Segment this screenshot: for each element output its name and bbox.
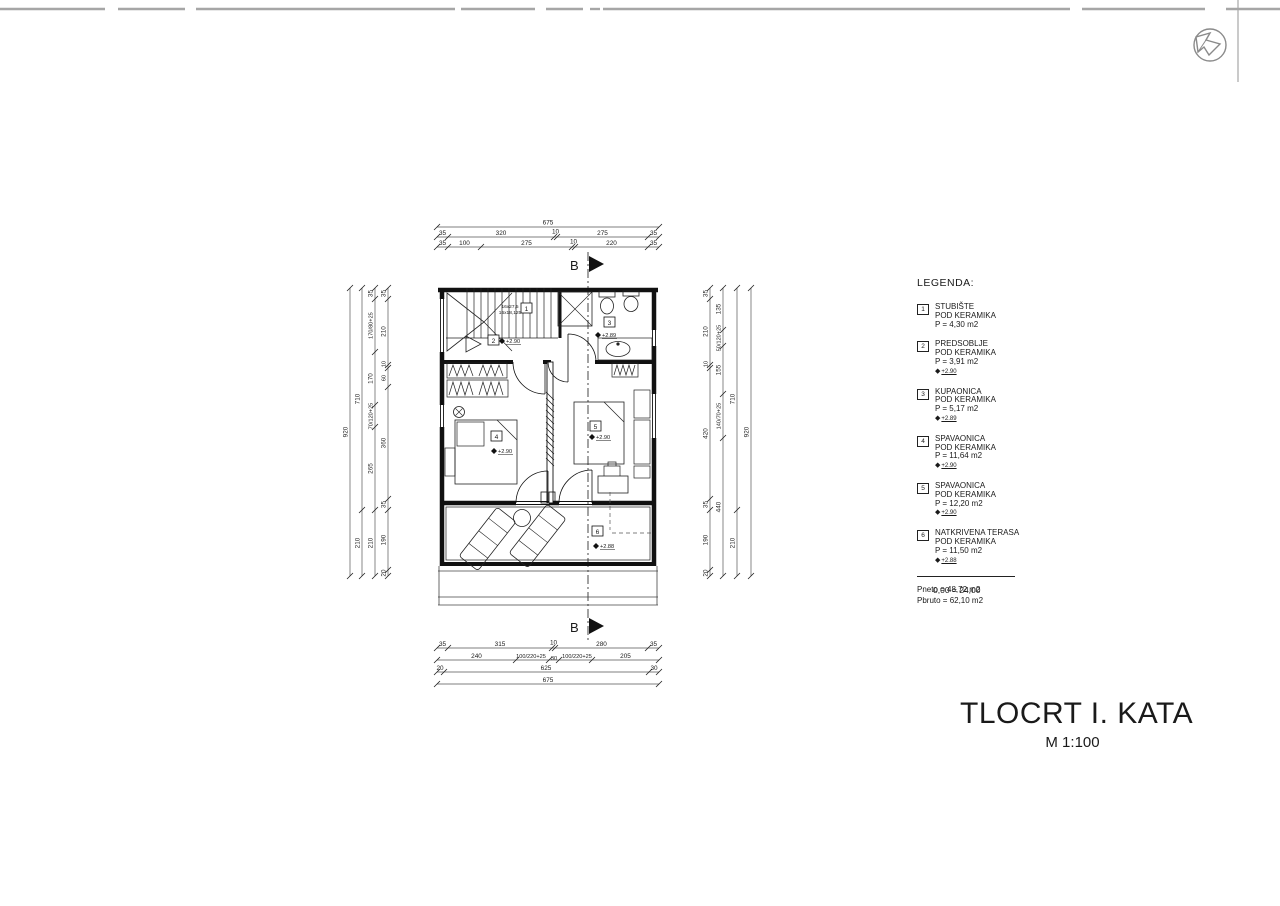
plan-walls	[438, 288, 658, 566]
wardrobe	[634, 390, 650, 418]
datum-note: 0,00 = 24,00	[933, 585, 981, 595]
dim-label: 360	[381, 437, 388, 448]
svg-text:1: 1	[525, 306, 529, 313]
dim-label: 920	[343, 426, 350, 437]
dim-label: 220	[606, 240, 617, 247]
legend-item-number: 5	[917, 483, 929, 494]
svg-text:3: 3	[608, 320, 612, 327]
legend-item-5: 5 SPAVAONICA POD KERAMIKA P = 12,20 m2 ◆…	[917, 482, 1107, 518]
dim-label: 50/120+25	[717, 325, 723, 352]
sheet-title: TLOCRT I. KATA	[960, 697, 1185, 731]
dim-label: 10	[382, 361, 388, 367]
dim-label: 10	[550, 640, 558, 647]
dim-label: 140/70+25	[717, 403, 723, 430]
legend-item-area: P = 11,64 m2	[935, 452, 996, 461]
dim-label: 35	[381, 501, 388, 509]
dim-label: 35	[650, 240, 658, 247]
door	[513, 334, 596, 503]
dim-label: 10	[570, 239, 578, 246]
level-marker-room5: +2.90	[589, 434, 611, 441]
dim-label: 210	[368, 537, 375, 548]
svg-text:+2.90: +2.90	[596, 435, 610, 441]
level-diamond-icon: ◆	[935, 415, 940, 422]
legend-item-area: P = 3,91 m2	[935, 358, 996, 367]
dim-label: 190	[381, 534, 388, 545]
svg-text:+2.89: +2.89	[602, 333, 616, 339]
dim-label: 20	[436, 665, 444, 672]
dim-label: 265	[368, 463, 375, 474]
sink	[598, 338, 652, 360]
svg-text:6: 6	[596, 529, 600, 536]
nightstand	[634, 466, 650, 478]
section-marker-top: B	[570, 256, 604, 273]
dim-label: 30	[551, 656, 557, 662]
dim-label: 135	[716, 303, 723, 314]
level-diamond-icon: ◆	[935, 557, 940, 564]
dim-label: 210	[703, 326, 710, 337]
dim-label: 170/80+25	[369, 312, 375, 339]
vent-symbol	[454, 407, 465, 418]
level-marker-room6: +2.88	[593, 543, 615, 550]
dim-chain-top: 675 35 320 10 275 35 35 100 275 10 220 3…	[434, 220, 662, 251]
section-line: B B	[570, 252, 604, 640]
logo-icon	[1194, 29, 1226, 61]
svg-text:+2.90: +2.90	[498, 449, 512, 455]
dim-label: 210	[730, 537, 737, 548]
section-label: B	[570, 620, 579, 635]
dim-chain-right: 35 210 10 420 35 190 20 135 50/120+25 15…	[703, 285, 755, 579]
bidet	[623, 291, 639, 312]
level-diamond-icon: ◆	[935, 509, 940, 516]
dim-label: 170	[368, 373, 375, 384]
svg-text:16x27,5: 16x27,5	[501, 304, 518, 310]
dim-label: 675	[543, 677, 554, 684]
legend-item-number: 4	[917, 436, 929, 447]
wardrobe	[447, 363, 507, 378]
svg-text:+2.90: +2.90	[506, 339, 520, 345]
dim-label: 710	[355, 393, 362, 404]
bedroom4-furniture	[445, 363, 517, 484]
overhang-dashed	[610, 492, 652, 533]
dim-label: 155	[716, 364, 723, 375]
dim-label: 210	[355, 537, 362, 548]
dim-label: 35	[368, 290, 375, 298]
dim-label: 10	[552, 229, 560, 236]
legend-item-number: 6	[917, 530, 929, 541]
lounger	[509, 504, 566, 568]
dim-label: 625	[541, 665, 552, 672]
dim-label: 20	[381, 569, 388, 577]
legend-item-4: 4 SPAVAONICA POD KERAMIKA P = 11,64 m2 ◆…	[917, 435, 1107, 471]
dim-label: 30	[650, 665, 658, 672]
section-marker-bottom: B	[570, 618, 604, 635]
dim-label: 920	[744, 426, 751, 437]
radiator	[612, 363, 638, 377]
room-number-4: 4	[491, 431, 502, 441]
dim-label: 190	[703, 534, 710, 545]
bed	[574, 402, 624, 464]
dim-label: 440	[716, 501, 723, 512]
dim-label: 35	[703, 290, 710, 298]
desk-chair	[598, 462, 628, 493]
legend-item-6: 6 NATKRIVENA TERASA POD KERAMIKA P = 11,…	[917, 529, 1107, 565]
roof-lines	[438, 566, 658, 605]
drawing-sheet: 675 35 320 10 275 35 35 100 275 10 220 3…	[0, 0, 1280, 906]
legend-item-level: ◆+2.90	[935, 368, 996, 377]
sheet-border	[0, 0, 1280, 82]
room-number-1: 1	[521, 303, 532, 313]
dim-label: 100/220+25	[562, 654, 592, 660]
dim-label: 275	[597, 230, 608, 237]
svg-text:16x18,125: 16x18,125	[499, 310, 522, 316]
svg-text:5: 5	[594, 424, 598, 431]
svg-text:4: 4	[495, 434, 499, 441]
dim-label: 275	[521, 240, 532, 247]
dim-label: 35	[439, 240, 447, 247]
dim-label: 35	[439, 641, 447, 648]
room-number-2: 2	[488, 335, 499, 345]
section-label: B	[570, 258, 579, 273]
level-marker-room2: +2.90	[499, 338, 521, 345]
room-number-6: 6	[592, 526, 603, 536]
dim-label: 70/120+25	[369, 403, 375, 430]
legend-item-number: 3	[917, 389, 929, 400]
legend-item-number: 1	[917, 304, 929, 315]
legend-item-2: 2 PREDSOBLJE POD KERAMIKA P = 3,91 m2 ◆+…	[917, 340, 1107, 376]
dim-label: 315	[495, 641, 506, 648]
dim-label: 420	[703, 428, 710, 439]
level-diamond-icon: ◆	[935, 462, 940, 469]
legend-item-level: ◆+2.90	[935, 509, 996, 518]
room-number-5: 5	[590, 421, 601, 431]
legend-item-level: ◆+2.90	[935, 462, 996, 471]
sheet-scale: M 1:100	[960, 734, 1185, 751]
dim-label: 210	[381, 326, 388, 337]
svg-text:+2.88: +2.88	[600, 544, 614, 550]
dim-label: 100	[459, 240, 470, 247]
dim-label: 60	[382, 375, 388, 381]
dim-label: 35	[439, 230, 447, 237]
dim-label: 205	[620, 653, 631, 660]
room-number-3: 3	[604, 317, 615, 327]
nightstand	[445, 448, 455, 476]
legend-title: LEGENDA:	[917, 277, 1107, 289]
table	[514, 510, 531, 527]
dim-label: 100/220+25	[516, 654, 546, 660]
legend-item-level: ◆+2.88	[935, 557, 1019, 566]
level-marker-room4: +2.90	[491, 448, 513, 455]
toilet	[599, 291, 615, 314]
legend-item-number: 2	[917, 341, 929, 352]
dim-label: 35	[703, 501, 710, 509]
legend-item-level: ◆+2.89	[935, 415, 996, 424]
dim-chain-bottom: 35 315 10 280 35 240 100/220+25 30 100/2…	[434, 640, 662, 688]
dim-chain-left: 920 710 210 35 170/80+25 170 70/120+25 2…	[343, 285, 392, 579]
dim-label: 240	[471, 653, 482, 660]
dim-label: 35	[650, 641, 658, 648]
legend-item-area: P = 12,20 m2	[935, 500, 996, 509]
dim-label: 710	[730, 393, 737, 404]
shower	[558, 292, 592, 326]
bedroom5-furniture	[574, 363, 650, 493]
svg-text:2: 2	[492, 338, 496, 345]
dim-label: 320	[496, 230, 507, 237]
legend-item-area: P = 11,50 m2	[935, 547, 1019, 556]
title-block: TLOCRT I. KATA M 1:100	[960, 697, 1185, 751]
total-gross-area: Pbruto = 62,10 m2	[917, 595, 1107, 606]
dim-label: 10	[704, 361, 710, 367]
dim-label: 20	[703, 569, 710, 577]
legend-divider	[917, 576, 1015, 577]
legend: LEGENDA: 1 STUBIŠTE POD KERAMIKA P = 4,3…	[917, 277, 1107, 606]
dim-label: 35	[381, 290, 388, 298]
legend-item-area: P = 5,17 m2	[935, 405, 996, 414]
dim-label: 35	[650, 230, 658, 237]
dim-label: 675	[543, 220, 554, 227]
legend-item-3: 3 KUPAONICA POD KERAMIKA P = 5,17 m2 ◆+2…	[917, 388, 1107, 424]
legend-item-area: P = 4,30 m2	[935, 321, 996, 330]
dim-label: 280	[596, 641, 607, 648]
level-diamond-icon: ◆	[935, 368, 940, 375]
wardrobe	[447, 380, 508, 397]
wardrobe	[634, 420, 650, 464]
legend-item-1: 1 STUBIŠTE POD KERAMIKA P = 4,30 m2	[917, 303, 1107, 329]
lounger	[459, 507, 516, 571]
